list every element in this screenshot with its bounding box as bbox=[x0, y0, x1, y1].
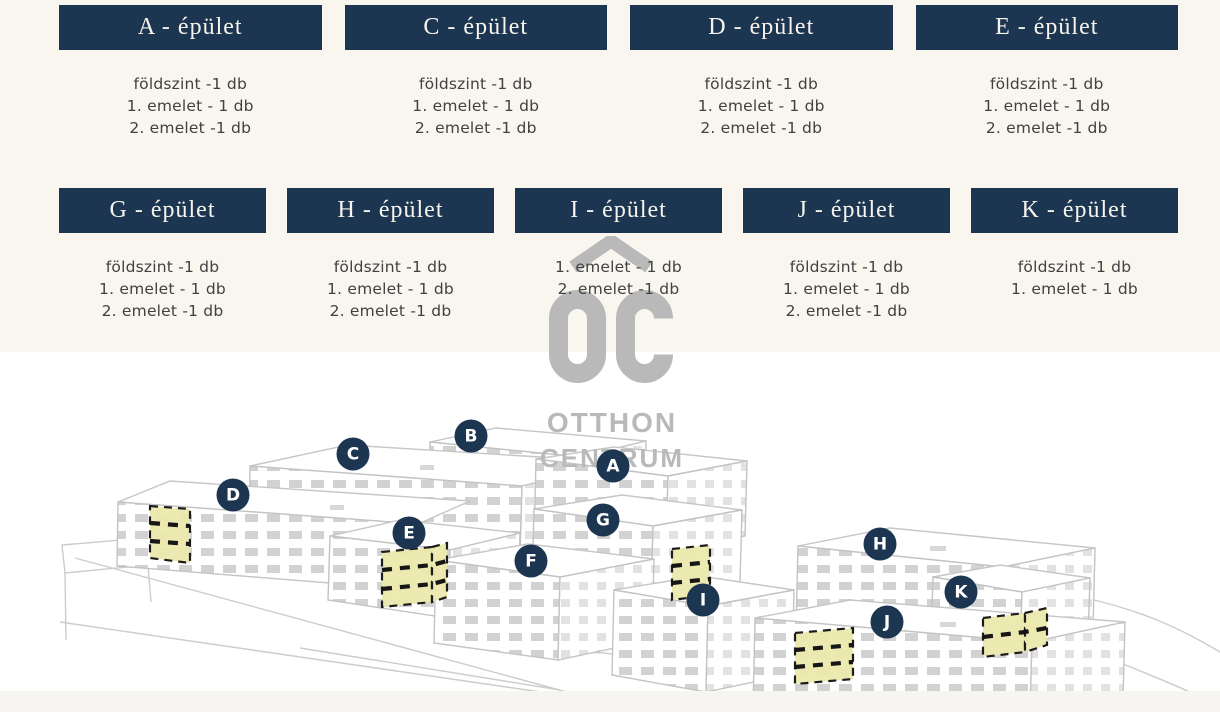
building-j-floors: földszint -1 db 1. emelet - 1 db 2. emel… bbox=[743, 256, 950, 322]
floor-availability: 1. emelet - 1 db bbox=[515, 256, 722, 278]
highlight-building-d[interactable] bbox=[150, 506, 190, 563]
building-i-button[interactable]: I - épület bbox=[515, 188, 722, 233]
availability-row-2: G - épület földszint -1 db 1. emelet - 1… bbox=[59, 188, 1178, 322]
floor-availability: földszint -1 db bbox=[916, 73, 1179, 95]
building-h-floors: földszint -1 db 1. emelet - 1 db 2. emel… bbox=[287, 256, 494, 322]
building-card-j: J - épület földszint -1 db 1. emelet - 1… bbox=[743, 188, 950, 322]
building-k-button[interactable]: K - épület bbox=[971, 188, 1178, 233]
floor-availability: 2. emelet -1 db bbox=[345, 117, 608, 139]
floor-availability: földszint -1 db bbox=[345, 73, 608, 95]
floor-availability: 1. emelet - 1 db bbox=[743, 278, 950, 300]
building-a-floors: földszint -1 db 1. emelet - 1 db 2. emel… bbox=[59, 73, 322, 139]
building-a-button[interactable]: A - épület bbox=[59, 5, 322, 50]
building-d-button[interactable]: D - épület bbox=[630, 5, 893, 50]
building-c-floors: földszint -1 db 1. emelet - 1 db 2. emel… bbox=[345, 73, 608, 139]
floor-availability: 2. emelet -1 db bbox=[743, 300, 950, 322]
floor-availability: földszint -1 db bbox=[59, 256, 266, 278]
building-g-button[interactable]: G - épület bbox=[59, 188, 266, 233]
building-j-button[interactable]: J - épület bbox=[743, 188, 950, 233]
floor-availability: 2. emelet -1 db bbox=[630, 117, 893, 139]
map-badge-e[interactable]: E bbox=[393, 517, 426, 550]
availability-row-1: A - épület földszint -1 db 1. emelet - 1… bbox=[59, 5, 1178, 139]
floor-availability: földszint -1 db bbox=[59, 73, 322, 95]
map-badge-b[interactable]: B bbox=[455, 420, 488, 453]
floor-availability: 1. emelet - 1 db bbox=[630, 95, 893, 117]
building-card-i: I - épület 1. emelet - 1 db 2. emelet -1… bbox=[515, 188, 722, 322]
map-badge-k[interactable]: K bbox=[945, 576, 978, 609]
floor-availability: 1. emelet - 1 db bbox=[345, 95, 608, 117]
map-badge-g[interactable]: G bbox=[587, 504, 620, 537]
building-card-d: D - épület földszint -1 db 1. emelet - 1… bbox=[630, 5, 893, 139]
building-card-e: E - épület földszint -1 db 1. emelet - 1… bbox=[916, 5, 1179, 139]
floor-availability: földszint -1 db bbox=[287, 256, 494, 278]
floor-availability: földszint -1 db bbox=[743, 256, 950, 278]
building-i-floors: 1. emelet - 1 db 2. emelet -1 db bbox=[515, 256, 722, 300]
building-card-k: K - épület földszint -1 db 1. emelet - 1… bbox=[971, 188, 1178, 322]
floor-availability: 1. emelet - 1 db bbox=[916, 95, 1179, 117]
building-k-floors: földszint -1 db 1. emelet - 1 db bbox=[971, 256, 1178, 300]
building-card-g: G - épület földszint -1 db 1. emelet - 1… bbox=[59, 188, 266, 322]
building-card-a: A - épület földszint -1 db 1. emelet - 1… bbox=[59, 5, 322, 139]
map-badge-f[interactable]: F bbox=[515, 545, 548, 578]
building-card-h: H - épület földszint -1 db 1. emelet - 1… bbox=[287, 188, 494, 322]
footer-band bbox=[0, 691, 1220, 712]
floor-availability: 2. emelet -1 db bbox=[59, 300, 266, 322]
building-c-button[interactable]: C - épület bbox=[345, 5, 608, 50]
highlight-building-e[interactable] bbox=[382, 543, 447, 607]
floor-availability: 2. emelet -1 db bbox=[59, 117, 322, 139]
map-badge-c[interactable]: C bbox=[337, 438, 370, 471]
floor-availability: 2. emelet -1 db bbox=[287, 300, 494, 322]
floor-availability: 2. emelet -1 db bbox=[515, 278, 722, 300]
floor-availability: 1. emelet - 1 db bbox=[59, 95, 322, 117]
building-card-c: C - épület földszint -1 db 1. emelet - 1… bbox=[345, 5, 608, 139]
building-e-button[interactable]: E - épület bbox=[916, 5, 1179, 50]
map-badge-j[interactable]: J bbox=[871, 606, 904, 639]
map-badge-i[interactable]: I bbox=[687, 584, 720, 617]
floor-availability: 1. emelet - 1 db bbox=[287, 278, 494, 300]
building-h-button[interactable]: H - épület bbox=[287, 188, 494, 233]
building-d-floors: földszint -1 db 1. emelet - 1 db 2. emel… bbox=[630, 73, 893, 139]
map-badge-h[interactable]: H bbox=[864, 528, 897, 561]
floor-availability: 1. emelet - 1 db bbox=[59, 278, 266, 300]
map-badge-a[interactable]: A bbox=[597, 450, 630, 483]
floor-availability: földszint -1 db bbox=[630, 73, 893, 95]
building-e-floors: földszint -1 db 1. emelet - 1 db 2. emel… bbox=[916, 73, 1179, 139]
map-badge-d[interactable]: D bbox=[217, 479, 250, 512]
floor-availability: 1. emelet - 1 db bbox=[971, 278, 1178, 300]
highlight-building-j[interactable] bbox=[795, 628, 853, 684]
floor-availability: 2. emelet -1 db bbox=[916, 117, 1179, 139]
building-g-floors: földszint -1 db 1. emelet - 1 db 2. emel… bbox=[59, 256, 266, 322]
floor-availability: földszint -1 db bbox=[971, 256, 1178, 278]
